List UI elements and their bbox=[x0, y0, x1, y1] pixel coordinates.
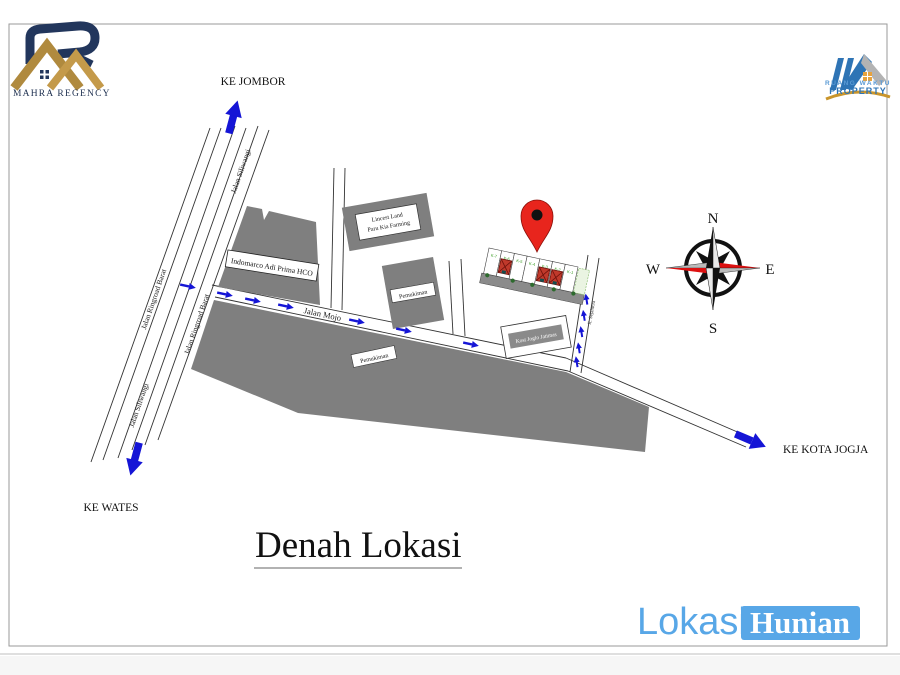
building-kost: Kost Joglo Jatimas bbox=[501, 316, 572, 359]
right-arrow-icon bbox=[471, 341, 479, 349]
page-title: Denah Lokasi bbox=[255, 525, 462, 566]
location-pin bbox=[521, 200, 553, 252]
road-label-sejahtera: Jl. Sejahtera bbox=[588, 300, 597, 326]
right-arrow-icon bbox=[253, 297, 261, 305]
side-road-1 bbox=[331, 168, 345, 310]
footer-brand: Lokasi Hunian bbox=[637, 601, 860, 643]
compass-west-blade bbox=[666, 262, 713, 268]
direction-label-jombor: KE JOMBOR bbox=[221, 76, 286, 88]
side-road-2 bbox=[449, 259, 465, 336]
down-arrow-icon bbox=[122, 458, 143, 478]
right-arrow-icon bbox=[286, 303, 294, 311]
right-arrow-icon bbox=[188, 283, 196, 291]
denah-lokasi-map: Jalan Siliwangi Jalan Ringroad Barat Jal… bbox=[0, 0, 900, 675]
direction-arrow-kota-jogja bbox=[732, 426, 769, 455]
direction-label-wates: KE WATES bbox=[83, 502, 138, 514]
up-arrow-icon bbox=[580, 309, 587, 316]
mahra-logo-mark bbox=[14, 26, 101, 88]
footer-lokasi-text: Lokasi bbox=[637, 601, 747, 643]
road-line bbox=[342, 168, 345, 310]
road-label-ringroad-left: Jalan Ringroad Barat bbox=[139, 267, 168, 331]
mahra-regency-logo: MAHRA REGENCY bbox=[13, 26, 111, 99]
page-bottom-strip bbox=[0, 656, 900, 675]
road-label-siliwangi-lower: Jalan Siliwangi bbox=[127, 382, 151, 428]
direction-label-kota-jogja: KE KOTA JOGJA bbox=[783, 444, 869, 456]
right-arrow-icon bbox=[749, 433, 769, 455]
direction-arrow-jombor bbox=[221, 98, 246, 135]
ruang-waktu-text-2: PROPERTY bbox=[829, 86, 887, 96]
mahra-logo-text: MAHRA REGENCY bbox=[13, 89, 111, 99]
right-arrow-icon bbox=[357, 318, 365, 326]
compass-south-point bbox=[706, 268, 713, 310]
pin-dot bbox=[532, 210, 543, 221]
direction-arrow-wates bbox=[122, 440, 147, 477]
up-arrow-icon bbox=[225, 98, 246, 118]
compass-rose: N S W E bbox=[646, 211, 775, 337]
ruang-waktu-logo: RUANG WAKTU PROPERTY bbox=[825, 54, 891, 99]
up-arrow-icon bbox=[578, 326, 585, 333]
road-line bbox=[461, 259, 465, 336]
building-pemukiman-upper: Pemukiman bbox=[382, 257, 444, 329]
compass-letter-e: E bbox=[765, 262, 774, 278]
site-plan: K-7 K-6 K-5 K-4 K-3 K-2 K-1 bbox=[480, 248, 590, 305]
building-lincest: Lincest Land Paru Kia Farming bbox=[342, 193, 434, 251]
right-arrow-icon bbox=[404, 327, 412, 335]
up-arrow-icon bbox=[575, 342, 582, 349]
compass-letter-w: W bbox=[646, 262, 661, 278]
window-icon bbox=[40, 70, 49, 79]
road-line bbox=[331, 168, 334, 308]
pin-icon bbox=[521, 200, 553, 252]
compass-north-point bbox=[713, 227, 720, 268]
right-arrow-icon bbox=[225, 291, 233, 299]
compass-east-blade bbox=[713, 268, 760, 274]
compass-letter-n: N bbox=[708, 211, 719, 227]
house-icon bbox=[549, 270, 563, 286]
road-line bbox=[449, 261, 453, 334]
house-icon bbox=[536, 267, 550, 283]
compass-letter-s: S bbox=[709, 321, 717, 337]
house-icon bbox=[498, 259, 512, 275]
footer-hunian-text: Hunian bbox=[750, 605, 850, 640]
